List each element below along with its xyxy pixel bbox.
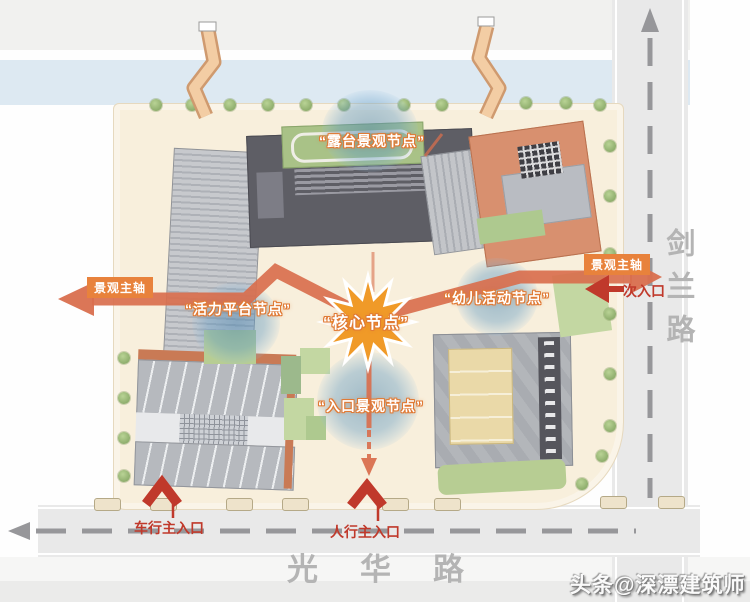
panel-roof [134, 441, 295, 491]
parked-car [600, 496, 627, 509]
entrance-node-label: “入口景观节点” [318, 396, 424, 416]
tree [594, 99, 606, 111]
window-strip [544, 341, 556, 455]
watermark: 头条@深漂建筑师 [570, 569, 745, 599]
parked-car [94, 498, 121, 511]
parked-car [226, 498, 253, 511]
tree [576, 478, 588, 490]
tree [604, 420, 616, 432]
pedestrian-entrance-label: 人行主入口 [330, 522, 400, 542]
tree [150, 99, 162, 111]
tree [604, 308, 616, 320]
vitality-node-label: “活力平台节点” [185, 299, 291, 319]
tree [224, 99, 236, 111]
parked-car [150, 498, 177, 511]
tree [604, 368, 616, 380]
sports-courts [448, 348, 514, 445]
tree [186, 99, 198, 111]
tree [596, 450, 608, 462]
terrace-node-label: “露台景观节点” [319, 131, 425, 151]
southwest-building [134, 349, 297, 490]
tree [520, 97, 532, 109]
northeast-building [468, 121, 601, 268]
southeast-building [433, 332, 573, 468]
tree [118, 352, 130, 364]
panel-roof [136, 359, 298, 419]
grid-courtyard [179, 414, 248, 445]
dark-roof-edge [538, 337, 562, 459]
south-road-arrow [8, 522, 30, 540]
grid-skylight [517, 141, 563, 179]
south-road-name: 光华路 [287, 544, 506, 589]
vitality-node-circle [192, 282, 280, 364]
axis-label-east: 景观主轴 [584, 254, 650, 275]
parked-car [434, 498, 461, 511]
lawn [281, 356, 301, 394]
core-node-label: “核心节点” [323, 309, 409, 333]
tree [262, 99, 274, 111]
parked-car [658, 496, 685, 509]
lawn [300, 348, 330, 374]
tree [436, 99, 448, 111]
north-road-band [0, 0, 690, 50]
vehicle-entrance-label: 车行主入口 [134, 518, 204, 538]
axis-label-west: 景观主轴 [87, 277, 153, 298]
east-road-name: 剑兰路 [657, 228, 699, 357]
masterplan-diagram: “露台景观节点” “核心节点” “活力平台节点” “幼儿活动节点” “入口景观节… [0, 0, 750, 602]
tree [118, 432, 130, 444]
tree [604, 140, 616, 152]
tree [300, 99, 312, 111]
parked-car [382, 498, 409, 511]
central-building-tower [256, 172, 284, 219]
tree [118, 470, 130, 482]
children-node-label: “幼儿活动节点” [444, 288, 550, 308]
lawn [552, 269, 612, 338]
tree [560, 97, 572, 109]
tree [118, 392, 130, 404]
parked-car [282, 498, 309, 511]
tree [604, 190, 616, 202]
